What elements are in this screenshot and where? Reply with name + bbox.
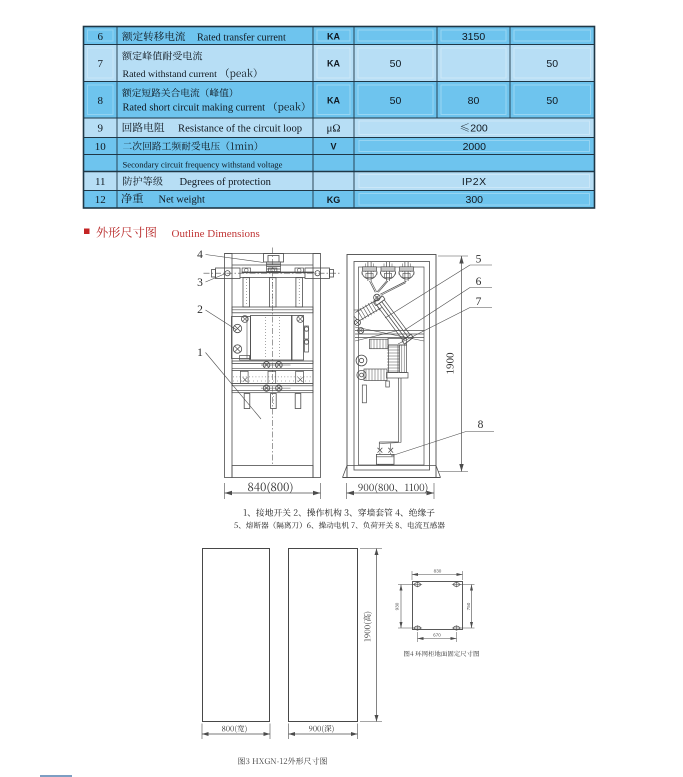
svg-text:50: 50: [546, 58, 558, 70]
svg-text:Rated transfer current: Rated transfer current: [197, 33, 286, 44]
svg-text:Resistance of the circuit loop: Resistance of the circuit loop: [178, 124, 302, 135]
svg-text:Outline Dimensions: Outline Dimensions: [172, 228, 260, 240]
svg-text:12: 12: [95, 194, 106, 206]
svg-text:670: 670: [433, 633, 441, 638]
svg-text:1900: 1900: [445, 352, 457, 375]
svg-text:V: V: [330, 142, 336, 152]
svg-text:9: 9: [98, 123, 104, 135]
svg-text:930: 930: [395, 602, 400, 610]
svg-text:Rated withstand current: Rated withstand current: [123, 69, 218, 80]
svg-text:3: 3: [197, 277, 203, 289]
svg-text:6: 6: [98, 31, 104, 43]
svg-text:μΩ: μΩ: [326, 123, 340, 135]
svg-text:Net weight: Net weight: [159, 195, 205, 206]
svg-text:300: 300: [465, 194, 483, 206]
svg-text:50: 50: [390, 58, 402, 70]
svg-text:50: 50: [390, 95, 402, 107]
svg-text:Secondary circuit frequency wi: Secondary circuit frequency withstand vo…: [123, 160, 283, 170]
svg-text:KA: KA: [327, 95, 340, 105]
svg-text:8: 8: [478, 419, 484, 431]
svg-text:IP2X: IP2X: [462, 176, 487, 188]
svg-text:750: 750: [466, 602, 471, 610]
svg-text:KA: KA: [327, 32, 340, 42]
svg-text:6: 6: [476, 276, 482, 288]
svg-text:2: 2: [197, 304, 203, 316]
svg-text:200: 200: [470, 123, 488, 135]
svg-text:7: 7: [98, 58, 104, 70]
svg-text:830: 830: [434, 569, 442, 574]
svg-text:4: 4: [197, 249, 203, 261]
svg-text:Degrees of protection: Degrees of protection: [180, 177, 272, 188]
svg-text:10: 10: [95, 141, 107, 153]
svg-text:KG: KG: [327, 195, 341, 205]
svg-text:3150: 3150: [462, 31, 486, 43]
svg-text:1: 1: [197, 347, 203, 359]
svg-text:Rated short circuit making cur: Rated short circuit making current: [123, 102, 266, 113]
svg-text:5: 5: [476, 254, 482, 266]
svg-text:2000: 2000: [463, 141, 487, 153]
svg-text:11: 11: [95, 176, 106, 188]
svg-text:KA: KA: [327, 59, 340, 69]
svg-text:50: 50: [546, 95, 558, 107]
svg-text:8: 8: [98, 95, 104, 107]
svg-text:7: 7: [476, 296, 482, 308]
svg-text:80: 80: [468, 95, 480, 107]
